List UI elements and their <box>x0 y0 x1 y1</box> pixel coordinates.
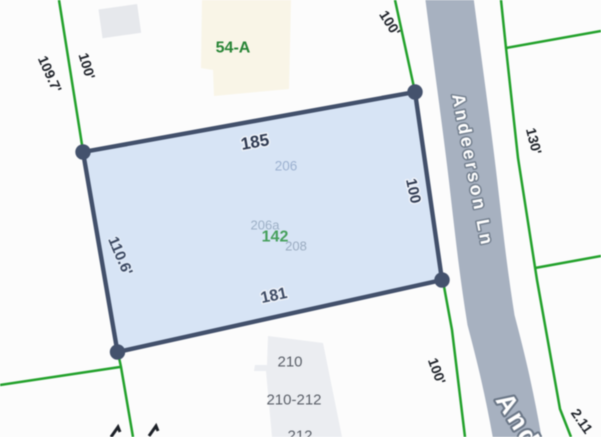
svg-text:54-A: 54-A <box>216 40 251 57</box>
svg-text:206: 206 <box>275 159 298 174</box>
svg-text:210: 210 <box>277 354 302 371</box>
svg-text:210-212: 210-212 <box>266 392 321 409</box>
svg-text:208: 208 <box>285 239 307 254</box>
svg-text:212: 212 <box>287 428 312 437</box>
